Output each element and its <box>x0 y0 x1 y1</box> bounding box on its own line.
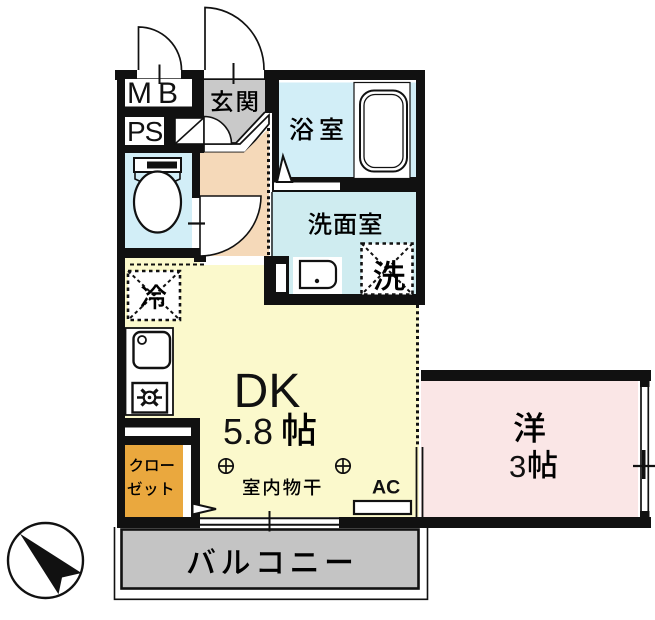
svg-text:PS: PS <box>127 116 163 147</box>
svg-text:5.8: 5.8 <box>223 411 273 452</box>
svg-text:3: 3 <box>509 449 526 484</box>
svg-text:B: B <box>158 77 178 110</box>
svg-text:M: M <box>127 77 152 110</box>
svg-text:AC: AC <box>372 477 400 499</box>
